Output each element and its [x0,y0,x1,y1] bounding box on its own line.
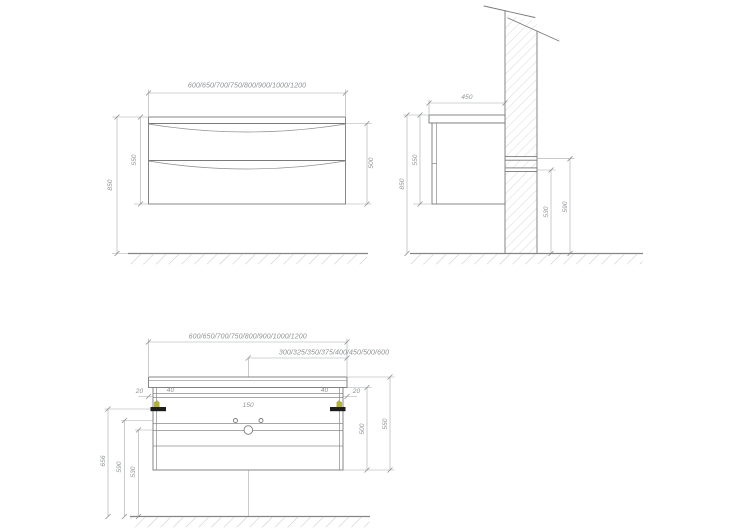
back-floor-hatch [131,517,370,527]
front-width-dimension: 600/650/700/750/800/900/1000/1200 [188,83,306,90]
side-height-850-dimension: 850 [399,178,406,189]
side-height-550-dimension: 550 [412,154,419,165]
left-bracket-bar [151,407,167,411]
front-height-500-dimension: 500 [369,157,376,168]
left-supply-hole [234,419,238,423]
back-right-bracket-40-dimension: 40 [321,388,328,395]
side-rail-530-dimension: 530 [543,206,550,217]
side-rail-590-dimension: 590 [562,201,569,212]
back-holes-150-dimension: 150 [243,402,254,409]
right-bracket-bar [330,407,346,411]
back-height-550-dimension: 550 [382,418,389,429]
side-view [403,6,643,264]
lower-mount-rail [505,168,537,172]
back-right-offset-20-dimension: 20 [353,388,360,395]
back-view [105,339,395,528]
side-floor-hatch [411,254,643,264]
side-countertop [429,115,505,123]
back-left-bracket-40-dimension: 40 [167,388,174,395]
front-height-550-dimension: 550 [131,154,138,165]
side-cabinet-body [432,123,505,204]
drain-hole [244,426,253,435]
technical-drawing-page: 600/650/700/750/800/900/1000/1200 550 85… [0,0,750,530]
back-height-590-dimension: 590 [117,461,124,472]
wall-hatch [505,14,537,254]
back-height-500-dimension: 500 [359,423,366,434]
front-view [112,90,372,265]
drawing-linework [0,0,750,530]
back-countertop-edge [149,377,348,388]
front-height-850-dimension: 850 [108,179,115,190]
back-width-dimension: 600/650/700/750/800/900/1000/1200 [189,334,307,341]
back-center-offset-dimension: 300/325/350/375/400/450/500/600 [279,349,389,356]
side-depth-450-dimension: 450 [461,94,472,101]
back-height-530-dimension: 530 [131,466,138,477]
front-floor-hatch [129,254,367,264]
back-height-656-dimension: 656 [100,455,107,466]
upper-mount-rail [505,157,537,161]
back-left-offset-20-dimension: 20 [136,388,143,395]
right-supply-hole [259,419,263,423]
